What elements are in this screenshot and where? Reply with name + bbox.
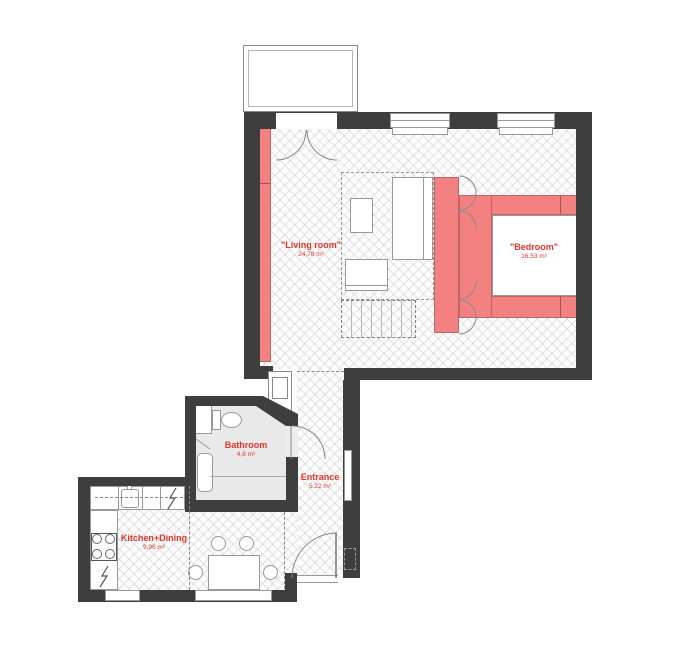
washbasin xyxy=(197,453,213,492)
coffee-table xyxy=(350,198,373,233)
entrance-corridor-floor xyxy=(297,368,343,575)
wall-bathroom-left xyxy=(185,396,196,512)
stove-burner xyxy=(105,534,115,544)
bedroom-partition-wall xyxy=(434,177,459,333)
wall-niche-dashed xyxy=(344,548,356,570)
shower-tray xyxy=(195,404,212,434)
counter-divider-2 xyxy=(142,487,143,509)
window-glass-line xyxy=(498,120,554,121)
dining-chair xyxy=(188,565,203,580)
shower-screen-line xyxy=(210,476,286,477)
boundary-living-entrance xyxy=(297,371,344,372)
counter-divider-3 xyxy=(160,487,161,509)
duct-shaft-inner xyxy=(272,377,288,399)
wall-cabinet-dashed-line xyxy=(95,497,183,498)
wall-entry-door-jamb xyxy=(285,573,297,593)
bottom-window xyxy=(195,590,272,601)
bathroom-door-opening xyxy=(286,426,298,457)
wall-kitchen-top xyxy=(78,477,196,486)
bottom-window xyxy=(105,590,140,601)
bedroom-band-divider-bottom xyxy=(560,297,561,317)
window-sill xyxy=(392,127,448,135)
wall-living-bottom xyxy=(344,368,592,380)
balcony-door-opening xyxy=(276,113,337,129)
window-sill xyxy=(499,127,553,135)
boundary-entrance-kitchen xyxy=(284,512,285,589)
kitchen-sink xyxy=(121,489,139,508)
stove-burner xyxy=(105,549,115,559)
tv-sideboard-line xyxy=(346,285,387,286)
stove-burner xyxy=(92,549,102,559)
wall-bathroom-right xyxy=(286,457,298,512)
bedroom-zone-left-band xyxy=(459,195,492,318)
toilet-bowl xyxy=(221,412,242,428)
sofa-backrest-line xyxy=(423,178,424,259)
stove-burner xyxy=(92,534,102,544)
wall-right xyxy=(576,112,592,380)
dining-table xyxy=(208,555,260,590)
floor-plan: "Living room" 24,78 m² "Bedroom" 16,53 m… xyxy=(0,0,700,652)
window-glass-line xyxy=(391,120,449,121)
toilet-tank xyxy=(212,410,221,430)
dining-chair xyxy=(211,536,226,551)
wall-kitchen-left xyxy=(78,477,90,602)
wall-bathroom-top xyxy=(185,396,262,406)
dining-chair xyxy=(263,565,278,580)
boundary-kitchen-dining xyxy=(189,486,190,590)
entry-door-threshold xyxy=(297,575,338,583)
sofa xyxy=(392,177,433,260)
wall-living-left xyxy=(244,112,260,378)
wall-niche xyxy=(344,450,352,501)
bed xyxy=(492,215,577,296)
balcony-inner-rail xyxy=(248,50,353,107)
counter-divider-1 xyxy=(118,487,119,509)
planned-wardrobe-outline xyxy=(341,300,416,338)
tv-sideboard xyxy=(345,259,388,291)
dining-chair xyxy=(239,536,254,551)
wall-bathroom-bottom xyxy=(185,500,298,512)
bedroom-band-divider-top xyxy=(560,196,561,214)
